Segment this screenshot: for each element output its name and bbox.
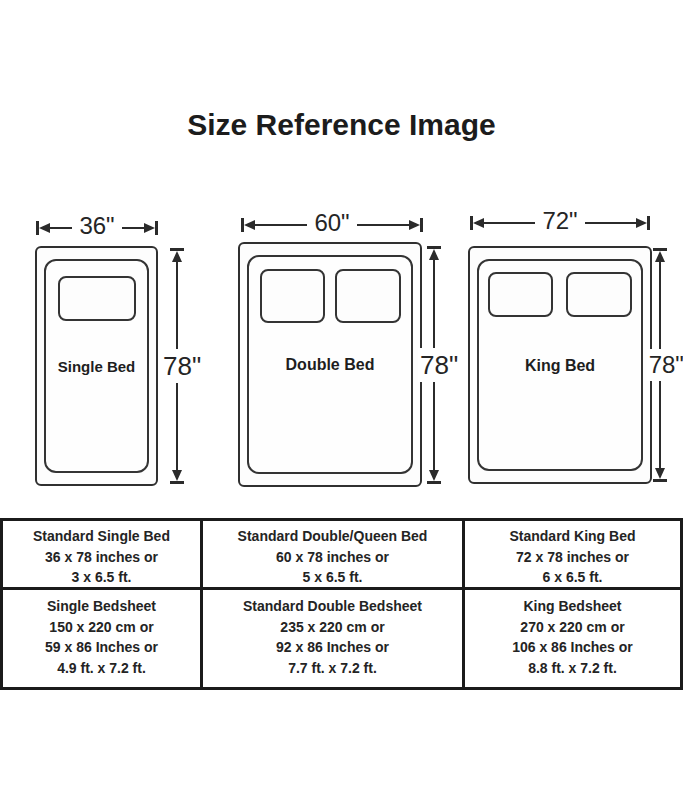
pillow-row	[479, 272, 641, 317]
height-arrow-king: 78"	[651, 248, 669, 482]
cell-line: 6 x 6.5 ft.	[465, 567, 680, 588]
cell-line: 3 x 6.5 ft.	[3, 567, 200, 588]
arrow-line	[50, 227, 72, 230]
table-cell-standard-king-bed: Standard King Bed 72 x 78 inches or 6 x …	[465, 521, 680, 590]
arrow-line	[122, 227, 144, 230]
height-arrow-single: 78"	[168, 248, 186, 484]
cell-line: Standard King Bed	[465, 526, 680, 547]
cell-line: 106 x 86 Inches or	[465, 637, 680, 658]
cell-line: 92 x 86 Inches or	[203, 637, 462, 658]
width-dimension-label: 72"	[535, 209, 584, 233]
cell-line: Standard Double/Queen Bed	[203, 526, 462, 547]
arrowhead-down-icon	[172, 470, 182, 481]
table-cell-single-bedsheet: Single Bedsheet 150 x 220 cm or 59 x 86 …	[3, 590, 203, 687]
cell-line: 60 x 78 inches or	[203, 547, 462, 568]
height-dimension-label: 78"	[418, 348, 460, 382]
width-dimension-label: 60"	[307, 211, 356, 235]
arrow-endbar	[420, 218, 423, 232]
pillow-row	[249, 269, 411, 323]
arrowhead-down-icon	[429, 470, 439, 481]
arrowhead-up-icon	[172, 251, 182, 262]
bed-name-label: King Bed	[479, 357, 641, 375]
table-cell-king-bedsheet: King Bedsheet 270 x 220 cm or 106 x 86 I…	[465, 590, 680, 687]
cell-line: 5 x 6.5 ft.	[203, 567, 462, 588]
cell-line: 235 x 220 cm or	[203, 617, 462, 638]
arrow-endbar	[155, 221, 158, 235]
arrowhead-left-icon	[473, 218, 484, 228]
mattress-outline: King Bed	[477, 259, 643, 471]
cell-line: 7.7 ft. x 7.2 ft.	[203, 658, 462, 679]
height-dimension-label: 78"	[161, 349, 203, 383]
arrowhead-left-icon	[244, 220, 255, 230]
arrow-endbar	[427, 481, 441, 484]
arrowhead-left-icon	[39, 223, 50, 233]
cell-line: Standard Double Bedsheet	[203, 596, 462, 617]
arrowhead-right-icon	[144, 223, 155, 233]
cell-line: Standard Single Bed	[3, 526, 200, 547]
pillow-row	[46, 276, 147, 321]
cell-line: 270 x 220 cm or	[465, 617, 680, 638]
cell-line: 150 x 220 cm or	[3, 617, 200, 638]
cell-line: 59 x 86 Inches or	[3, 637, 200, 658]
cell-line: 72 x 78 inches or	[465, 547, 680, 568]
cell-line: Single Bedsheet	[3, 596, 200, 617]
bed-diagram-double: Double Bed	[238, 242, 422, 487]
cell-line: 8.8 ft. x 7.2 ft.	[465, 658, 680, 679]
bed-diagram-king: King Bed	[468, 246, 652, 484]
width-arrow-double: 60"	[241, 216, 423, 234]
pillow-icon	[58, 276, 136, 321]
mattress-outline: Double Bed	[247, 255, 413, 474]
arrow-endbar	[170, 481, 184, 484]
page-title: Size Reference Image	[0, 108, 683, 142]
pillow-icon	[566, 272, 632, 317]
arrow-endbar	[653, 479, 667, 482]
bed-name-label: Single Bed	[46, 358, 147, 375]
cell-line: 36 x 78 inches or	[3, 547, 200, 568]
arrow-line	[357, 224, 409, 227]
size-table: Standard Single Bed 36 x 78 inches or 3 …	[0, 518, 683, 690]
cell-line: 4.9 ft. x 7.2 ft.	[3, 658, 200, 679]
height-dimension-label: 78"	[647, 349, 683, 381]
table-cell-standard-double-queen-bed: Standard Double/Queen Bed 60 x 78 inches…	[203, 521, 465, 590]
arrowhead-up-icon	[429, 249, 439, 260]
arrow-line	[484, 222, 535, 225]
width-arrow-single: 36"	[36, 219, 158, 237]
arrowhead-right-icon	[409, 220, 420, 230]
arrowhead-up-icon	[655, 251, 665, 262]
pillow-icon	[260, 269, 325, 323]
mattress-outline: Single Bed	[44, 259, 149, 473]
table-cell-standard-single-bed: Standard Single Bed 36 x 78 inches or 3 …	[3, 521, 203, 590]
size-reference-page: Size Reference Image 36" Single Bed 78" …	[0, 0, 683, 800]
arrow-line	[255, 224, 307, 227]
pillow-icon	[335, 269, 401, 323]
width-dimension-label: 36"	[72, 214, 121, 238]
cell-line: King Bedsheet	[465, 596, 680, 617]
arrow-endbar	[647, 216, 650, 230]
width-arrow-king: 72"	[470, 214, 650, 232]
height-arrow-double: 78"	[425, 246, 443, 484]
arrowhead-down-icon	[655, 468, 665, 479]
pillow-icon	[488, 272, 553, 317]
arrowhead-right-icon	[636, 218, 647, 228]
table-cell-standard-double-bedsheet: Standard Double Bedsheet 235 x 220 cm or…	[203, 590, 465, 687]
bed-name-label: Double Bed	[249, 356, 411, 374]
bed-diagram-single: Single Bed	[35, 246, 158, 486]
arrow-line	[585, 222, 636, 225]
